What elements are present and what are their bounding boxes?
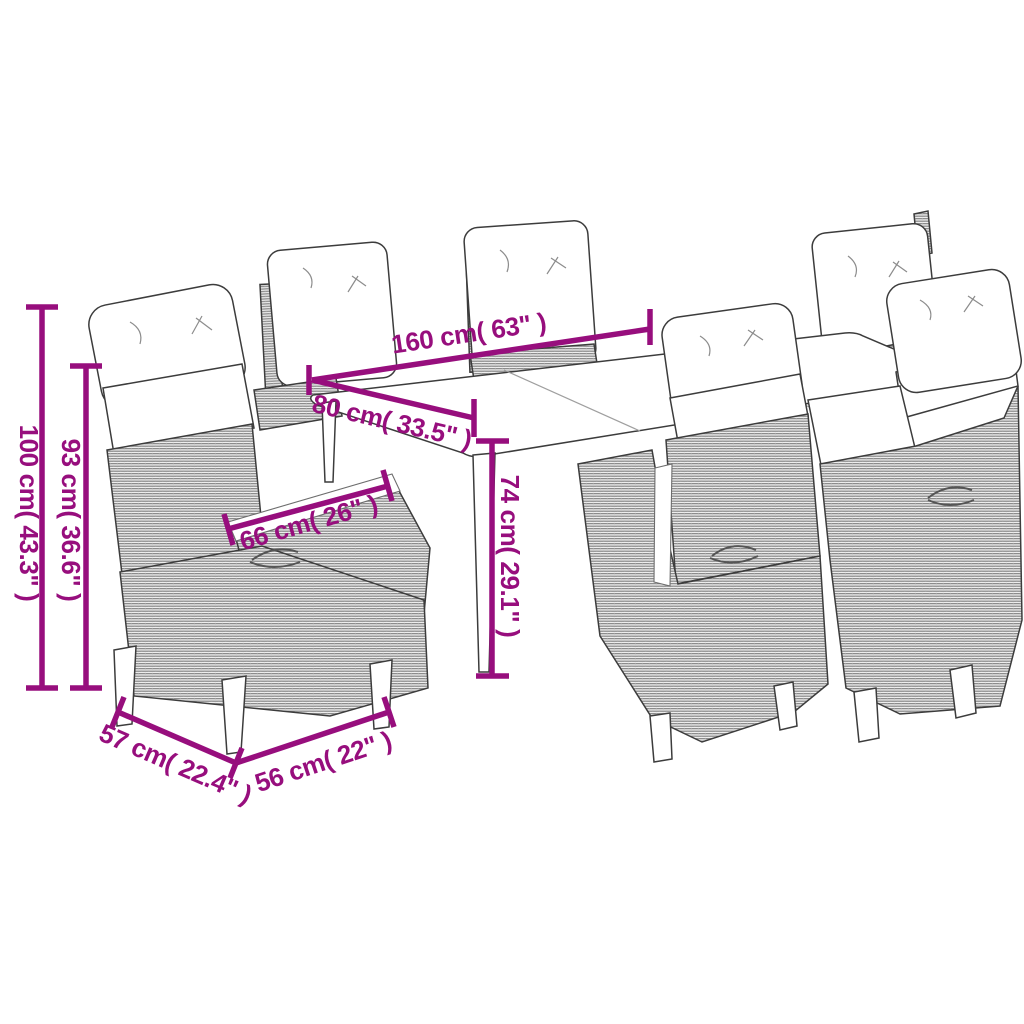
furniture-line-art [85, 211, 1023, 762]
chair-backrest-panel [666, 414, 820, 584]
chair-back-cushion [266, 241, 397, 387]
dimension-chair-back-height: 93 cm( 36.6" ) [56, 366, 102, 688]
dimension-label-chair-total-height: 100 cm( 43.3" ) [14, 425, 44, 602]
dimension-chair-total-height: 100 cm( 43.3" ) [14, 307, 58, 688]
dimension-label-table-height: 74 cm( 29.1" ) [495, 475, 525, 638]
chair-foot [774, 682, 797, 730]
diagram-canvas: 160 cm( 63" ) 80 cm( 33.5" ) 74 cm( 29.1… [0, 0, 1024, 1024]
dimension-label-chair-back-height: 93 cm( 36.6" ) [56, 439, 86, 602]
backrest-edge-trim [654, 464, 672, 586]
product-dimension-diagram: 160 cm( 63" ) 80 cm( 33.5" ) 74 cm( 29.1… [0, 0, 1024, 1024]
chair-foot [650, 713, 672, 762]
chair-back-cushion [884, 267, 1024, 395]
chair-foot [854, 688, 879, 742]
chair-foot [222, 676, 246, 754]
